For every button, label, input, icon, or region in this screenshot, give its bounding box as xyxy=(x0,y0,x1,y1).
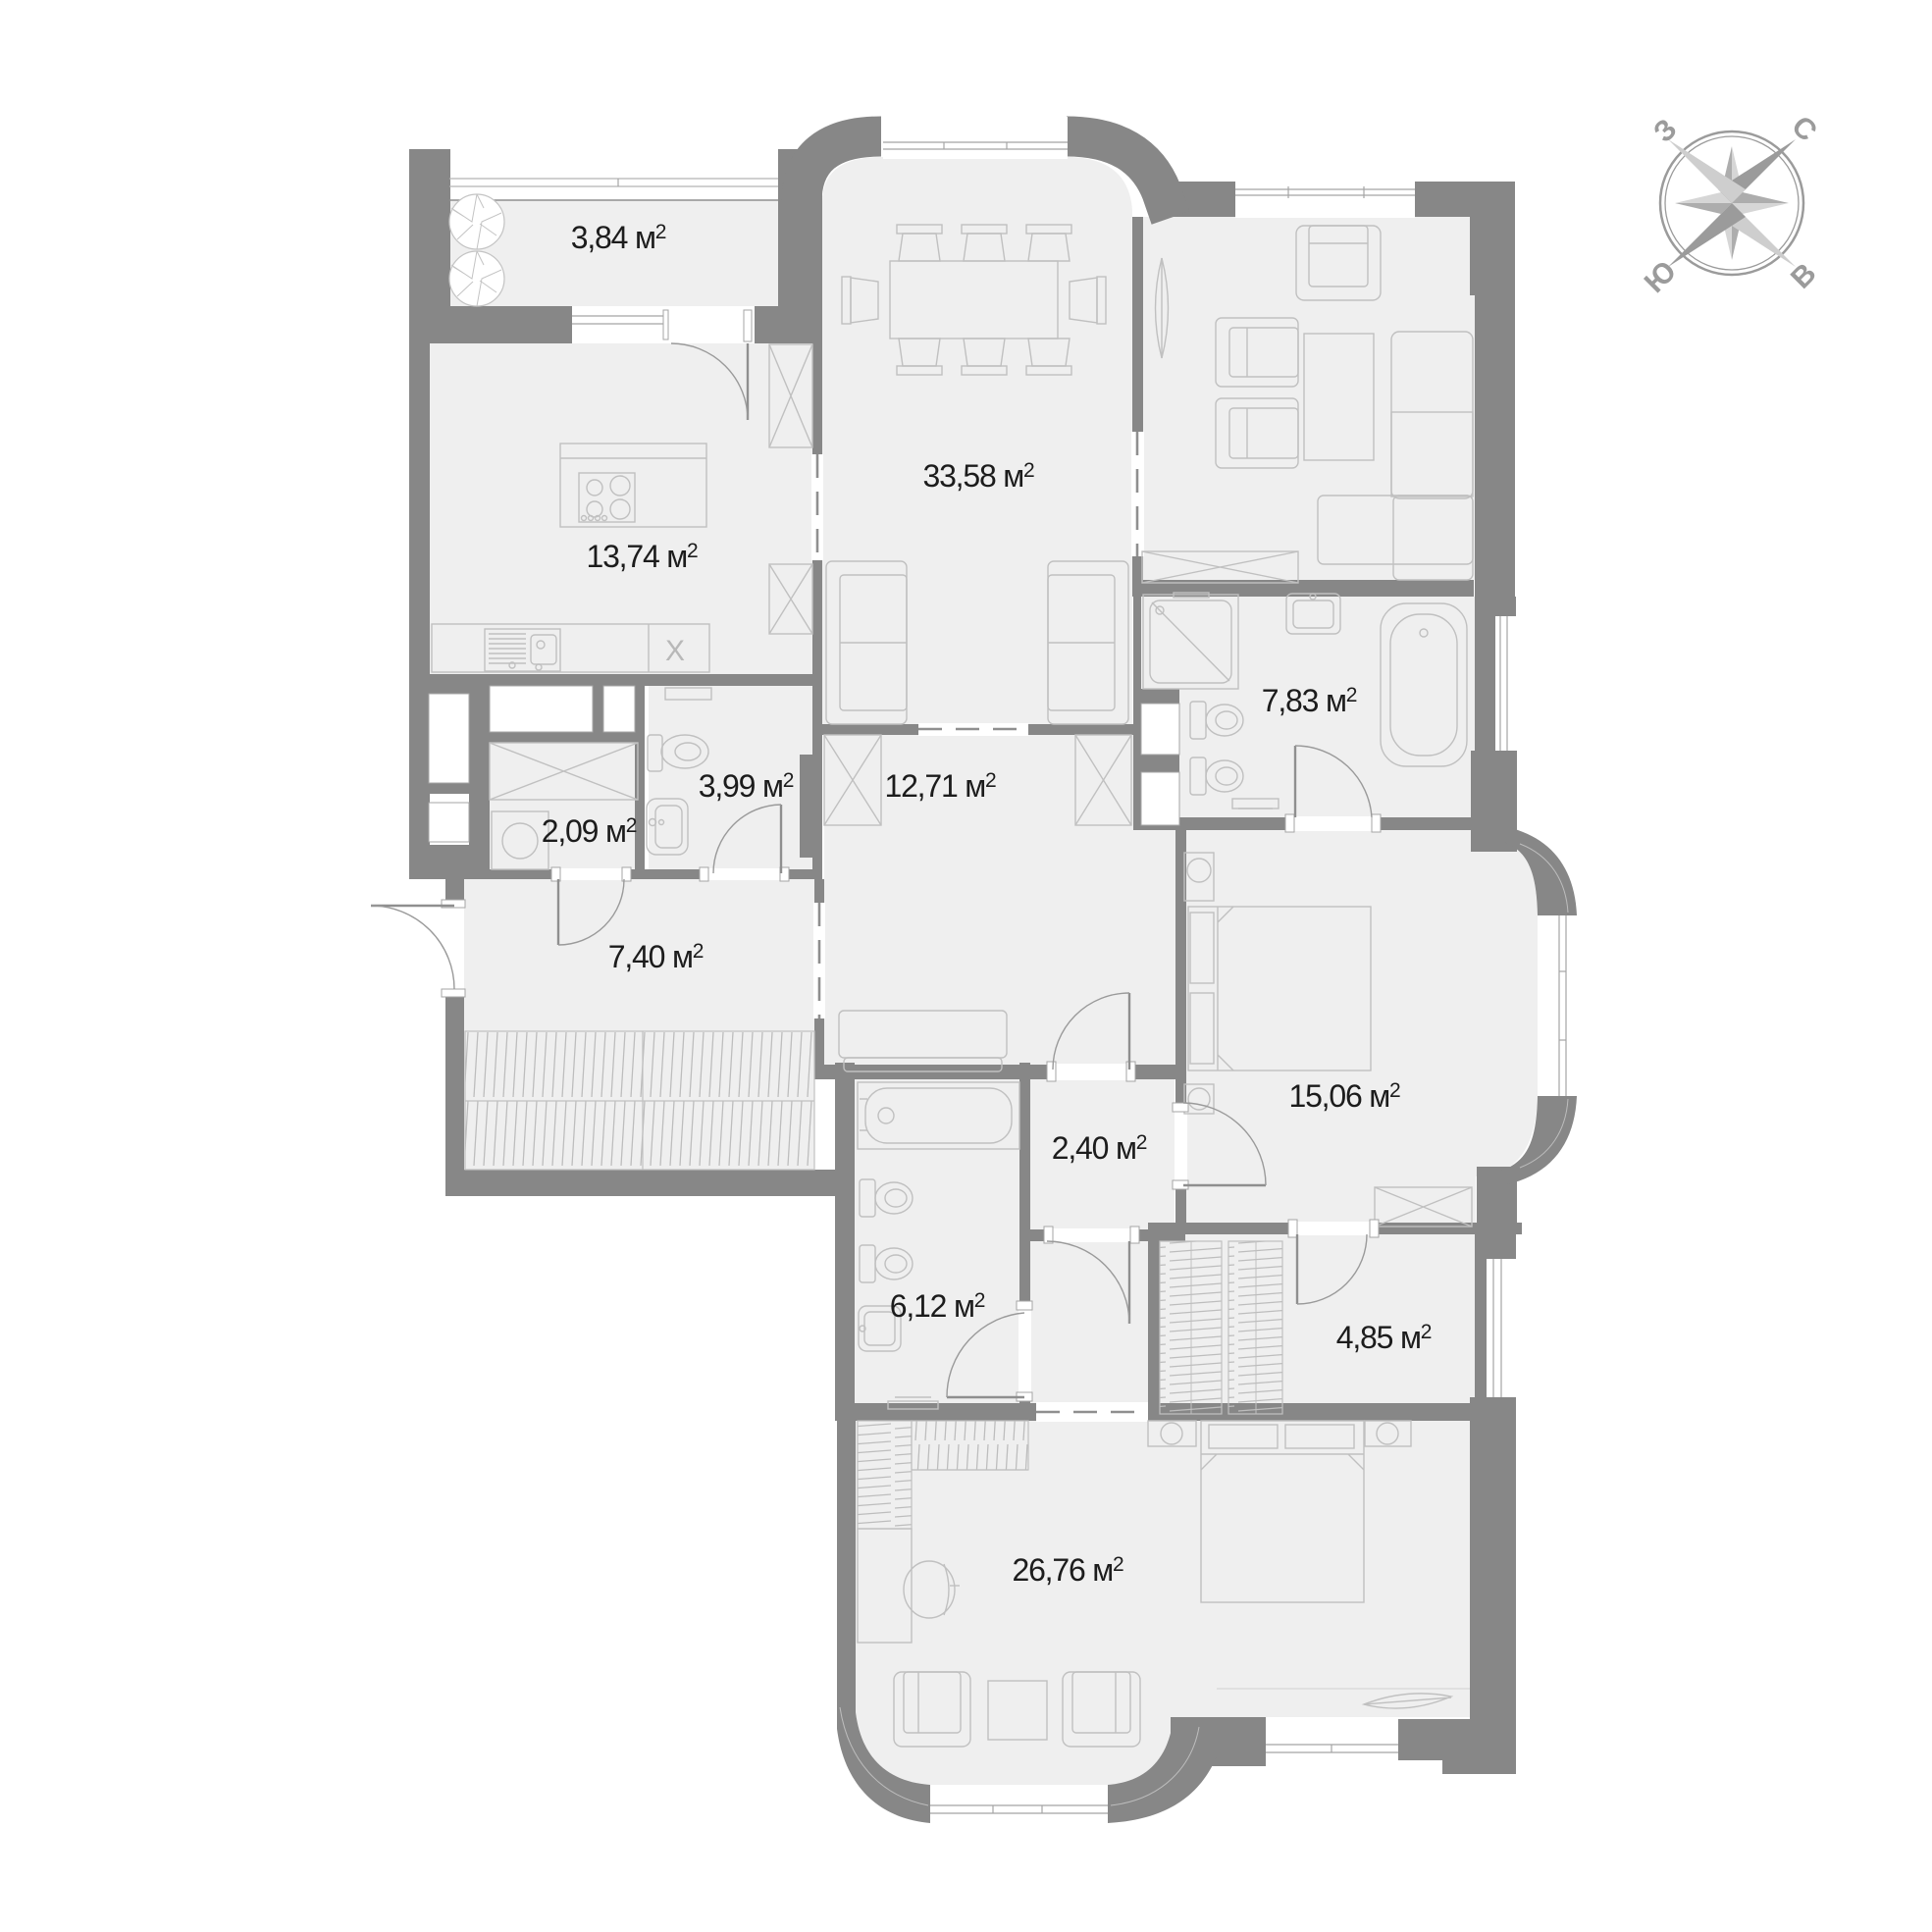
svg-text:4,85 м2: 4,85 м2 xyxy=(1336,1320,1432,1355)
svg-text:2,09 м2: 2,09 м2 xyxy=(542,813,637,849)
svg-text:X: X xyxy=(665,635,685,667)
svg-text:7,40 м2: 7,40 м2 xyxy=(608,939,704,974)
svg-text:6,12 м2: 6,12 м2 xyxy=(890,1288,985,1324)
svg-text:26,76 м2: 26,76 м2 xyxy=(1012,1552,1123,1588)
svg-text:3,99 м2: 3,99 м2 xyxy=(699,768,794,804)
svg-text:2,40 м2: 2,40 м2 xyxy=(1052,1130,1147,1166)
svg-text:12,71 м2: 12,71 м2 xyxy=(884,768,996,804)
svg-text:7,83 м2: 7,83 м2 xyxy=(1262,683,1357,718)
svg-text:13,74 м2: 13,74 м2 xyxy=(586,539,698,574)
svg-text:33,58 м2: 33,58 м2 xyxy=(922,458,1034,494)
svg-text:15,06 м2: 15,06 м2 xyxy=(1288,1078,1400,1114)
svg-text:3,84 м2: 3,84 м2 xyxy=(571,220,666,255)
